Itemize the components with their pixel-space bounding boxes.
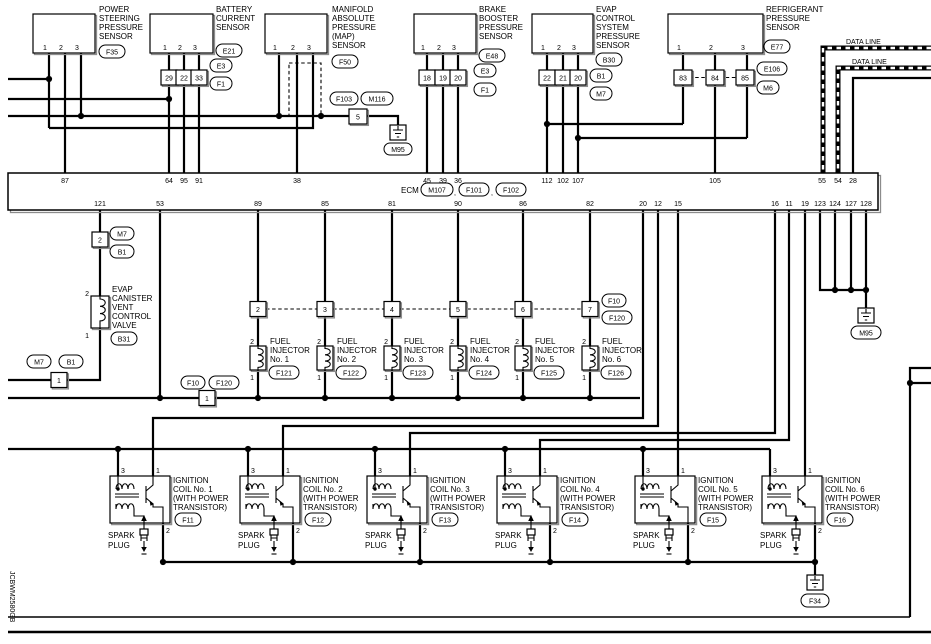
connector-tag: M116 [369, 97, 386, 104]
pin-label: 2 [553, 528, 557, 535]
wire [910, 368, 931, 617]
pin-label: 3 [508, 468, 512, 475]
spark-plug-label: SPARK [365, 531, 392, 540]
ground-icon [390, 125, 406, 140]
data-line-label: DATA LINE [852, 59, 887, 66]
evap-canister-vent-control-valve: 2 M7 B1 2 1 EVAP CANISTER VENT CONTROL V… [27, 227, 153, 389]
inline-connector-5: F103 M116 5 M95 [330, 92, 412, 155]
battery-current-sensor: 1 2 3 BATTERY CURRENT SENSOR E21 29 22 3… [150, 5, 255, 90]
component-name-line: FUEL [470, 337, 491, 346]
ecm-pin-top: 105 [709, 178, 721, 185]
component-name-line: COIL No. 2 [303, 485, 343, 494]
ignition-coil-icon [240, 476, 302, 525]
sensor-name-line: (MAP) [332, 32, 355, 41]
sensor-name-line: MANIFOLD [332, 5, 374, 14]
component-name-line: FUEL [535, 337, 556, 346]
wire [540, 210, 789, 476]
pin-label: 1 [384, 375, 388, 382]
terminal-number: 5 [356, 115, 360, 122]
ecm-pin-top: 28 [849, 178, 857, 185]
pin-label: 1 [582, 375, 586, 382]
ecm-pin-bottom: 86 [519, 201, 527, 208]
pin-label: 2 [709, 45, 713, 52]
pin-label: 2 [515, 339, 519, 346]
ecm-pin-top: 112 [541, 178, 552, 185]
ecm-pin-bottom: 124 [829, 201, 841, 208]
pin-label: 2 [818, 528, 822, 535]
terminal-number: 22 [180, 76, 188, 83]
ecm-pin-bottom: 123 [814, 201, 826, 208]
connector-tag: M7 [34, 360, 44, 367]
pin-label: 1 [681, 468, 685, 475]
injector-coil-icon [250, 346, 267, 371]
component-name-line: (WITH POWER [173, 494, 229, 503]
ecm-pin-bottom: 53 [156, 201, 164, 208]
spark-plug-label: SPARK [633, 531, 660, 540]
wire [410, 210, 775, 476]
connector-tag: F50 [339, 60, 351, 67]
component-name-line: FUEL [404, 337, 425, 346]
wire [8, 210, 160, 398]
pin-label: 1 [250, 375, 254, 382]
pin-label: 2 [166, 528, 170, 535]
ground-tag: M95 [391, 147, 405, 154]
terminal-number: 85 [741, 76, 749, 83]
ignition-coil-1: 3 1 2 IGNITION COIL No. 1 (WITH POWER TR… [108, 468, 229, 554]
component-name-line: CANISTER [112, 294, 153, 303]
sensor-name-line: CURRENT [216, 14, 255, 23]
pin-label: 1 [273, 45, 277, 52]
connector-tag: F35 [106, 50, 118, 57]
component-name-line: (WITH POWER [430, 494, 486, 503]
pin-label: 3 [452, 45, 456, 52]
pin-label: 1 [450, 375, 454, 382]
spark-plug-label: SPARK [495, 531, 522, 540]
ecm-pin-top: 64 [165, 178, 173, 185]
ecm-pin-bottom: 127 [845, 201, 857, 208]
component-name-line: INJECTOR [602, 346, 642, 355]
ignition-coil-icon [497, 476, 559, 525]
terminal-number: 1 [57, 378, 61, 385]
connector-tag: F125 [541, 371, 557, 378]
ground-tag: M95 [859, 331, 873, 338]
sensor-name-line: SENSOR [216, 23, 250, 32]
pin-label: 2 [384, 339, 388, 346]
ecm-pin-top: 95 [180, 178, 188, 185]
wiring-diagram-page: 1 2 3 POWER STEERING PRESSURE SENSOR F35… [0, 0, 931, 644]
wire [153, 210, 643, 476]
connector-tag: F13 [439, 518, 451, 525]
pin-label: 1 [85, 333, 89, 340]
connector-tag: M6 [763, 86, 773, 93]
map-sensor: 1 2 3 MANIFOLD ABSOLUTE PRESSURE (MAP) S… [265, 5, 376, 68]
sensor-name-line: STEERING [99, 14, 140, 23]
diagram-code: JCBWM2580GB [8, 571, 15, 623]
pin-label: 1 [156, 468, 160, 475]
component-name-line: INJECTOR [535, 346, 575, 355]
component-name-line: COIL No. 4 [560, 485, 600, 494]
connector-tag: E77 [771, 45, 784, 52]
ecm-pin-top: 36 [454, 178, 462, 185]
connector-tag: F11 [182, 518, 194, 525]
connector-tag: F122 [343, 371, 359, 378]
sensor-name-line: SENSOR [479, 32, 513, 41]
sensor-name-line: BOOSTER [479, 14, 518, 23]
ecm-pin-top: 91 [195, 178, 203, 185]
connector-tag: F120 [216, 381, 232, 388]
connector-tag: F14 [569, 518, 581, 525]
component-name-line: TRANSISTOR) [560, 503, 614, 512]
spark-plug-label: PLUG [633, 541, 655, 550]
pin-label: 3 [251, 468, 255, 475]
ecm-pin-top: 39 [439, 178, 447, 185]
terminal-number: 84 [711, 76, 719, 83]
terminal-number: 22 [543, 76, 551, 83]
connector-tag: B30 [603, 58, 616, 65]
ecm-pin-top: 55 [818, 178, 826, 185]
terminal-number: 3 [323, 307, 327, 314]
sensor-name-line: POWER [99, 5, 129, 14]
sensor-name-line: SENSOR [332, 41, 366, 50]
connector-tag: F16 [834, 518, 846, 525]
terminal-number: 2 [98, 238, 102, 245]
spark-plug-label: PLUG [238, 541, 260, 550]
component-name-line: No. 5 [535, 355, 555, 364]
ground-tag: F34 [809, 599, 821, 606]
connector-tag: F12 [312, 518, 324, 525]
pin-label: 3 [121, 468, 125, 475]
ecm-pin-top: 87 [61, 178, 69, 185]
spark-plug-label: SPARK [760, 531, 787, 540]
ignition-coil-icon [635, 476, 697, 525]
connector-tag: B31 [118, 337, 131, 344]
ground-icon [858, 308, 874, 323]
sensor-name-line: SENSOR [766, 23, 800, 32]
refrigerant-pressure-sensor: 1 2 3 REFRIGERANT PRESSURE SENSOR E77 83… [668, 5, 823, 94]
ecm-pin-top: 45 [423, 178, 431, 185]
spark-plug-label: PLUG [365, 541, 387, 550]
component-name-line: COIL No. 6 [825, 485, 865, 494]
data-line-label: DATA LINE [846, 39, 881, 46]
separator: , [454, 190, 456, 197]
pin-label: 3 [646, 468, 650, 475]
pin-label: 3 [307, 45, 311, 52]
sensor-name-line: SYSTEM [596, 23, 629, 32]
pin-label: 2 [450, 339, 454, 346]
evap-control-system-pressure-sensor: 1 2 3 EVAP CONTROL SYSTEM PRESSURE SENSO… [532, 5, 640, 100]
ecm-pin-bottom: 19 [801, 201, 809, 208]
pin-label: 3 [378, 468, 382, 475]
injector-feed-connector: F10 F120 1 [181, 376, 239, 407]
injector-coil-icon [384, 346, 401, 371]
ignition-coil-3: 3 1 2 IGNITION COIL No. 3 (WITH POWER TR… [365, 468, 486, 554]
component-name-line: TRANSISTOR) [825, 503, 879, 512]
connector-tag: E48 [486, 54, 499, 61]
pin-label: 2 [59, 45, 63, 52]
ecm-pin-bottom: 81 [388, 201, 396, 208]
ecm-pin-bottom: 90 [454, 201, 462, 208]
pin-label: 1 [541, 45, 545, 52]
injector-coil-icon [317, 346, 334, 371]
data-line-wires [823, 48, 931, 173]
ecm-pin-bottom: 16 [771, 201, 779, 208]
spark-plug-label: SPARK [108, 531, 135, 540]
component-name-line: FUEL [337, 337, 358, 346]
component-name-line: No. 4 [470, 355, 490, 364]
spark-plug-label: PLUG [108, 541, 130, 550]
component-name-line: INJECTOR [337, 346, 377, 355]
pin-label: 1 [808, 468, 812, 475]
pin-label: 3 [572, 45, 576, 52]
component-name-line: COIL No. 3 [430, 485, 470, 494]
component-name-line: IGNITION [825, 476, 861, 485]
connector-tag: F10 [608, 299, 620, 306]
coil-ground-f34: F34 [801, 575, 829, 607]
pin-label: 1 [421, 45, 425, 52]
ecm-pin-bottom: 121 [94, 201, 106, 208]
component-name-line: VENT [112, 303, 133, 312]
terminal-number: 29 [165, 76, 173, 83]
pin-label: 3 [75, 45, 79, 52]
injector-coil-icon [582, 346, 599, 371]
pin-label: 2 [423, 528, 427, 535]
connector-tag: F121 [276, 371, 292, 378]
ignition-coil-2: 3 1 2 IGNITION COIL No. 2 (WITH POWER TR… [238, 468, 359, 554]
component-name-line: COIL No. 5 [698, 485, 738, 494]
terminal-number: 19 [439, 76, 447, 83]
sensor-name-line: PRESSURE [766, 14, 810, 23]
terminal-number: 1 [205, 396, 209, 403]
ignition-coil-icon [110, 476, 172, 525]
terminal-number: 18 [423, 76, 431, 83]
pin-label: 2 [437, 45, 441, 52]
component-name-line: IGNITION [430, 476, 466, 485]
ecm-pin-top: 54 [834, 178, 842, 185]
sensor-name-line: SENSOR [596, 41, 630, 50]
connector-tag: B1 [118, 250, 127, 257]
ignition-coil-icon [367, 476, 429, 525]
terminal-number: 20 [454, 76, 462, 83]
connector-tag: F123 [410, 371, 426, 378]
ecm-pin-bottom: 89 [254, 201, 262, 208]
pin-label: 1 [413, 468, 417, 475]
sensor-name-line: REFRIGERANT [766, 5, 823, 14]
component-name-line: TRANSISTOR) [430, 503, 484, 512]
connector-tag: E21 [223, 49, 236, 56]
connector-tag: F120 [609, 316, 625, 323]
ecm-module: ECM M107 , F101 , F102 87 64 95 91 38 45… [8, 173, 881, 213]
sensor-name-line: EVAP [596, 5, 617, 14]
ecm-pin-bottom: 128 [860, 201, 872, 208]
pin-label: 2 [317, 339, 321, 346]
pin-label: 2 [582, 339, 586, 346]
connector-tag: E106 [764, 67, 780, 74]
sensor-name-line: SENSOR [99, 32, 133, 41]
terminal-number: 20 [574, 76, 582, 83]
spark-plug-label: PLUG [495, 541, 517, 550]
component-name-line: FUEL [602, 337, 623, 346]
ecm-pin-top: 107 [572, 178, 584, 185]
component-name-line: (WITH POWER [698, 494, 754, 503]
component-name-line: FUEL [270, 337, 291, 346]
ground-icon [807, 575, 823, 590]
component-name-line: IGNITION [303, 476, 339, 485]
component-name-line: CONTROL [112, 312, 152, 321]
sensor-name-line: PRESSURE [479, 23, 523, 32]
pin-label: 2 [178, 45, 182, 52]
component-name-line: No. 2 [337, 355, 357, 364]
component-name-line: TRANSISTOR) [173, 503, 227, 512]
terminal-number: 7 [588, 307, 592, 314]
component-name-line: TRANSISTOR) [698, 503, 752, 512]
ignition-coil-icon [762, 476, 824, 525]
connector-tag: B1 [67, 360, 76, 367]
ecm-pin-bottom: 85 [321, 201, 329, 208]
ecm-pin-bottom: 20 [639, 201, 647, 208]
component-name-line: (WITH POWER [303, 494, 359, 503]
pin-label: 1 [515, 375, 519, 382]
component-name-line: No. 6 [602, 355, 622, 364]
component-name-line: COIL No. 1 [173, 485, 213, 494]
spark-plug-label: PLUG [760, 541, 782, 550]
terminal-number: 33 [195, 76, 203, 83]
connector-tag: F126 [608, 371, 624, 378]
injector-coil-icon [515, 346, 532, 371]
ecm-ground-m95: M95 [851, 308, 881, 339]
shield-dashed-box [289, 63, 321, 116]
connector-tag: F101 [466, 188, 482, 195]
component-name-line: IGNITION [560, 476, 596, 485]
ecm-pin-bottom: 12 [654, 201, 662, 208]
component-name-line: INJECTOR [470, 346, 510, 355]
ecm-pin-top: 102 [557, 178, 569, 185]
component-name-line: VALVE [112, 321, 137, 330]
connector-tag: M7 [117, 232, 127, 239]
pin-label: 1 [286, 468, 290, 475]
pin-label: 1 [543, 468, 547, 475]
wire [820, 210, 866, 308]
sensor-name-line: PRESSURE [332, 23, 376, 32]
pin-label: 1 [43, 45, 47, 52]
connector-tag: F1 [217, 82, 225, 89]
separator: , [491, 190, 493, 197]
brake-booster-pressure-sensor: 1 2 3 BRAKE BOOSTER PRESSURE SENSOR E48 … [414, 5, 523, 96]
sensor-name-line: BATTERY [216, 5, 253, 14]
pin-label: 2 [557, 45, 561, 52]
ecm-pin-bottom: 11 [785, 201, 792, 208]
component-name-line: IGNITION [698, 476, 734, 485]
component-name-line: (WITH POWER [825, 494, 881, 503]
pin-label: 3 [741, 45, 745, 52]
terminal-number: 6 [521, 307, 525, 314]
ecm-pin-bottom: 15 [674, 201, 682, 208]
ignition-coil-6: 3 1 2 IGNITION COIL No. 6 (WITH POWER TR… [760, 468, 881, 554]
power-steering-pressure-sensor: 1 2 3 POWER STEERING PRESSURE SENSOR F35 [33, 5, 143, 58]
wiring-diagram: 1 2 3 POWER STEERING PRESSURE SENSOR F35… [0, 0, 931, 644]
sensor-name-line: PRESSURE [99, 23, 143, 32]
sensor-name-line: BRAKE [479, 5, 506, 14]
pin-label: 2 [85, 291, 89, 298]
connector-tag: F124 [476, 371, 492, 378]
component-name-line: INJECTOR [404, 346, 444, 355]
component-name-line: (WITH POWER [560, 494, 616, 503]
connector-tag: F1 [481, 88, 489, 95]
pin-label: 2 [296, 528, 300, 535]
wire [678, 210, 805, 476]
pin-label: 1 [677, 45, 681, 52]
ecm-pin-bottom: 82 [586, 201, 594, 208]
ecm-label: ECM [401, 186, 419, 195]
component-name-line: IGNITION [173, 476, 209, 485]
sensor-name-line: ABSOLUTE [332, 14, 375, 23]
connector-tag: M7 [596, 92, 606, 99]
ecm-pin-top: 38 [293, 178, 301, 185]
connector-tag: B1 [597, 74, 606, 81]
injector-link-tags: F10 F120 [602, 294, 632, 324]
connector-tag: F10 [187, 381, 199, 388]
component-name-line: EVAP [112, 285, 133, 294]
component-name-line: No. 3 [404, 355, 424, 364]
injector-coil-icon [450, 346, 467, 371]
terminal-number: 21 [559, 76, 567, 83]
pin-label: 2 [291, 45, 295, 52]
pin-label: 2 [691, 528, 695, 535]
connector-tag: F103 [336, 97, 352, 104]
connector-tag: F15 [707, 518, 719, 525]
component-name-line: No. 1 [270, 355, 290, 364]
pin-label: 1 [317, 375, 321, 382]
terminal-number: 4 [390, 307, 394, 314]
pin-label: 3 [193, 45, 197, 52]
component-name-line: TRANSISTOR) [303, 503, 357, 512]
terminal-number: 83 [679, 76, 687, 83]
pin-label: 3 [773, 468, 777, 475]
component-name-line: INJECTOR [270, 346, 310, 355]
sensor-name-line: PRESSURE [596, 32, 640, 41]
connector-tag: F102 [503, 188, 519, 195]
terminal-number: 2 [256, 307, 260, 314]
spark-plug-label: SPARK [238, 531, 265, 540]
ignition-coil-5: 3 1 2 IGNITION COIL No. 5 (WITH POWER TR… [633, 468, 754, 554]
ignition-coil-4: 3 1 2 IGNITION COIL No. 4 (WITH POWER TR… [495, 468, 616, 554]
connector-tag: M107 [428, 188, 446, 195]
pin-label: 2 [250, 339, 254, 346]
connector-tag: E3 [217, 64, 226, 71]
terminal-number: 5 [456, 307, 460, 314]
pin-label: 1 [163, 45, 167, 52]
sensor-name-line: CONTROL [596, 14, 636, 23]
connector-tag: E3 [481, 69, 490, 76]
